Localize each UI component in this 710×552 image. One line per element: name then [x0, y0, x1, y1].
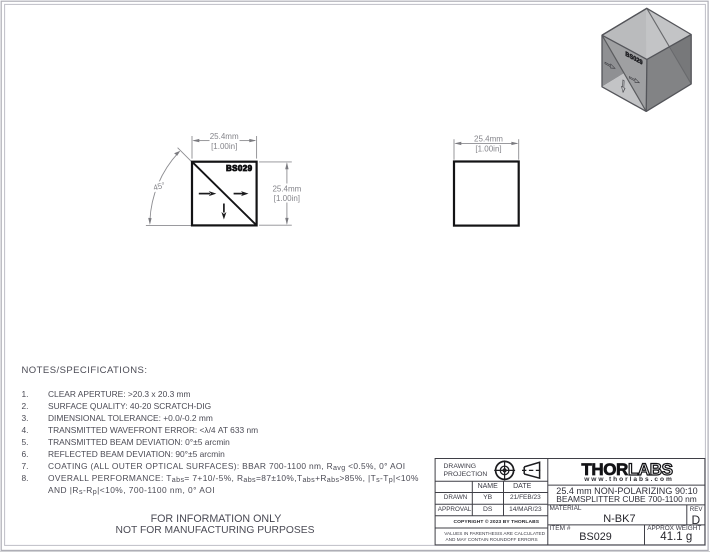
svg-text:[1.00in]: [1.00in] [475, 145, 501, 154]
svg-text:BS029: BS029 [226, 164, 253, 173]
svg-text:25.4mm: 25.4mm [474, 135, 503, 144]
svg-text:25.4mm: 25.4mm [210, 132, 239, 141]
svg-text:25.4mm: 25.4mm [272, 185, 301, 194]
svg-text:[1.00in]: [1.00in] [211, 142, 237, 151]
svg-text:45°: 45° [152, 181, 166, 193]
svg-text:[1.00in]: [1.00in] [274, 194, 300, 203]
